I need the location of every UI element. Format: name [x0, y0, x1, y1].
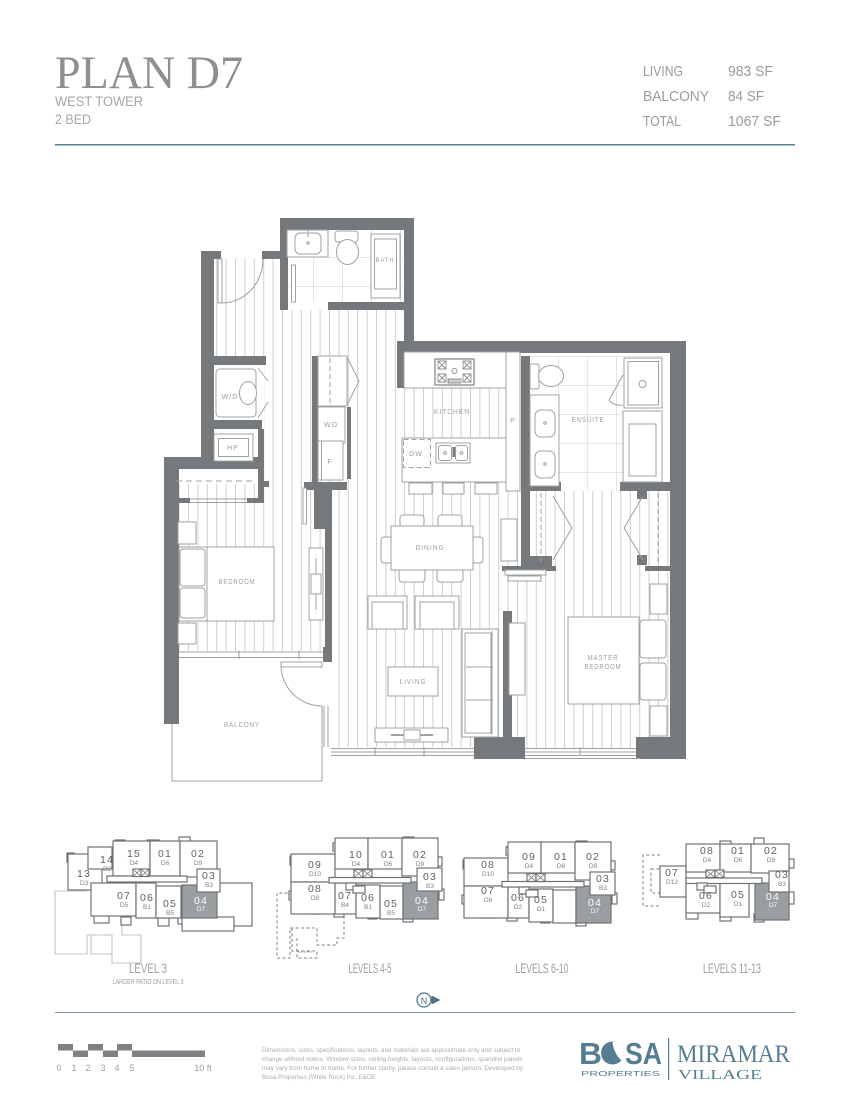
- svg-text:10 ft: 10 ft: [194, 1063, 212, 1073]
- svg-text:B3: B3: [599, 885, 607, 892]
- svg-text:05: 05: [384, 898, 398, 910]
- svg-text:Dimensions, sizes, specificati: Dimensions, sizes, specifications, layou…: [262, 1047, 521, 1054]
- svg-text:Bosa Properties (White Rock) I: Bosa Properties (White Rock) Inc. E&OE: [262, 1074, 376, 1081]
- svg-text:SA: SA: [625, 1036, 662, 1071]
- svg-text:05: 05: [163, 898, 177, 910]
- svg-text:1: 1: [71, 1063, 76, 1073]
- svg-text:5: 5: [129, 1063, 134, 1073]
- svg-text:MASTER: MASTER: [588, 655, 619, 662]
- svg-text:06: 06: [361, 892, 375, 904]
- svg-text:LIVING: LIVING: [643, 64, 683, 80]
- svg-text:MIRAMAR: MIRAMAR: [677, 1041, 790, 1068]
- svg-text:B3: B3: [426, 883, 434, 890]
- svg-text:may vary from home to home. Fo: may vary from home to home. For further …: [262, 1065, 524, 1072]
- svg-text:PLAN D7: PLAN D7: [55, 47, 243, 99]
- svg-text:06: 06: [140, 892, 154, 904]
- svg-text:LARGER PATIO ON LEVEL 3: LARGER PATIO ON LEVEL 3: [113, 977, 184, 986]
- svg-text:KITCHEN: KITCHEN: [434, 409, 470, 416]
- svg-text:06: 06: [699, 890, 713, 902]
- svg-text:B4: B4: [341, 902, 349, 909]
- svg-text:07: 07: [117, 890, 131, 902]
- svg-text:2: 2: [85, 1063, 90, 1073]
- svg-text:03: 03: [202, 870, 216, 882]
- svg-text:HP: HP: [227, 445, 239, 452]
- svg-text:01: 01: [554, 851, 568, 863]
- svg-text:983 SF: 983 SF: [728, 64, 773, 80]
- svg-text:D1: D1: [734, 901, 743, 908]
- svg-text:D4: D4: [352, 861, 361, 868]
- svg-text:07: 07: [481, 885, 495, 897]
- svg-text:D7: D7: [197, 906, 206, 913]
- svg-text:3: 3: [100, 1063, 105, 1073]
- svg-text:84 SF: 84 SF: [728, 89, 764, 105]
- svg-text:N: N: [421, 996, 428, 1006]
- svg-text:01: 01: [381, 849, 395, 861]
- svg-text:BALCONY: BALCONY: [643, 89, 709, 105]
- svg-text:13: 13: [77, 868, 91, 880]
- svg-text:01: 01: [731, 845, 745, 857]
- svg-text:15: 15: [127, 848, 141, 860]
- svg-text:D10: D10: [309, 871, 321, 878]
- svg-text:LEVELS 4-5: LEVELS 4-5: [349, 960, 392, 976]
- svg-text:01: 01: [158, 848, 172, 860]
- svg-text:D2: D2: [702, 902, 711, 909]
- svg-text:B3: B3: [205, 882, 213, 889]
- svg-text:06: 06: [511, 892, 525, 904]
- svg-text:B1: B1: [143, 904, 151, 911]
- svg-text:D6: D6: [161, 860, 170, 867]
- svg-text:BEDROOM: BEDROOM: [585, 664, 622, 671]
- svg-text:D9: D9: [416, 861, 425, 868]
- svg-text:D3: D3: [80, 880, 89, 887]
- svg-text:02: 02: [764, 845, 778, 857]
- svg-text:0: 0: [56, 1063, 61, 1073]
- svg-text:LEVELS 6-10: LEVELS 6-10: [516, 960, 569, 976]
- svg-text:D4: D4: [525, 863, 534, 870]
- svg-text:1067 SF: 1067 SF: [728, 114, 781, 130]
- svg-text:VILLAGE: VILLAGE: [678, 1068, 762, 1083]
- svg-text:B5: B5: [166, 910, 174, 917]
- svg-text:09: 09: [308, 859, 322, 871]
- svg-text:08: 08: [481, 859, 495, 871]
- svg-text:D6: D6: [734, 857, 743, 864]
- svg-text:D4: D4: [703, 857, 712, 864]
- svg-text:05: 05: [534, 894, 548, 906]
- svg-text:DW: DW: [409, 451, 423, 458]
- svg-text:LIVING: LIVING: [400, 679, 427, 686]
- svg-text:4: 4: [114, 1063, 119, 1073]
- svg-text:D8: D8: [311, 895, 320, 902]
- svg-text:D6: D6: [557, 863, 566, 870]
- svg-text:LEVEL 3: LEVEL 3: [129, 960, 167, 976]
- svg-text:W/D: W/D: [222, 394, 239, 401]
- svg-text:TOTAL: TOTAL: [643, 114, 681, 130]
- svg-text:D7: D7: [591, 908, 600, 915]
- svg-text:B5: B5: [387, 910, 395, 917]
- svg-text:08: 08: [308, 883, 322, 895]
- svg-text:D1: D1: [537, 906, 546, 913]
- svg-text:change without notice. Window: change without notice. Window sizes, cei…: [262, 1056, 522, 1063]
- svg-text:ENSUITE: ENSUITE: [572, 417, 605, 424]
- svg-text:07: 07: [665, 867, 679, 879]
- svg-text:03: 03: [775, 869, 789, 881]
- svg-text:WEST TOWER: WEST TOWER: [55, 94, 143, 109]
- svg-text:BALCONY: BALCONY: [224, 722, 260, 729]
- svg-text:D12: D12: [666, 879, 678, 886]
- svg-text:P: P: [510, 418, 516, 425]
- svg-text:DINING: DINING: [416, 545, 445, 552]
- svg-text:PROPERTIES: PROPERTIES: [581, 1071, 661, 1078]
- svg-text:10: 10: [349, 849, 363, 861]
- svg-text:B2: B2: [103, 866, 111, 873]
- svg-text:D9: D9: [767, 857, 776, 864]
- svg-text:B3: B3: [778, 881, 786, 888]
- svg-text:BATH: BATH: [376, 258, 395, 264]
- svg-text:D6: D6: [384, 861, 393, 868]
- svg-text:03: 03: [596, 873, 610, 885]
- svg-text:D8: D8: [484, 897, 493, 904]
- svg-text:B1: B1: [364, 904, 372, 911]
- svg-text:14: 14: [100, 854, 114, 866]
- svg-text:2 BED: 2 BED: [55, 112, 91, 127]
- svg-text:07: 07: [338, 890, 352, 902]
- svg-text:08: 08: [700, 845, 714, 857]
- svg-text:D10: D10: [482, 871, 494, 878]
- svg-text:02: 02: [586, 851, 600, 863]
- svg-text:LEVELS 11-13: LEVELS 11-13: [703, 960, 761, 976]
- svg-text:WO: WO: [324, 422, 338, 429]
- svg-text:D5: D5: [120, 902, 129, 909]
- svg-text:D9: D9: [194, 860, 203, 867]
- svg-text:02: 02: [413, 849, 427, 861]
- svg-text:F: F: [327, 459, 332, 466]
- svg-text:D9: D9: [589, 863, 598, 870]
- svg-text:02: 02: [191, 848, 205, 860]
- svg-text:D7: D7: [418, 906, 427, 913]
- svg-text:03: 03: [423, 871, 437, 883]
- svg-text:BEDROOM: BEDROOM: [219, 579, 256, 586]
- svg-text:D4: D4: [130, 860, 139, 867]
- svg-text:D7: D7: [769, 902, 778, 909]
- svg-text:B: B: [579, 1036, 602, 1071]
- svg-text:05: 05: [731, 889, 745, 901]
- svg-text:09: 09: [522, 851, 536, 863]
- svg-text:D2: D2: [514, 904, 523, 911]
